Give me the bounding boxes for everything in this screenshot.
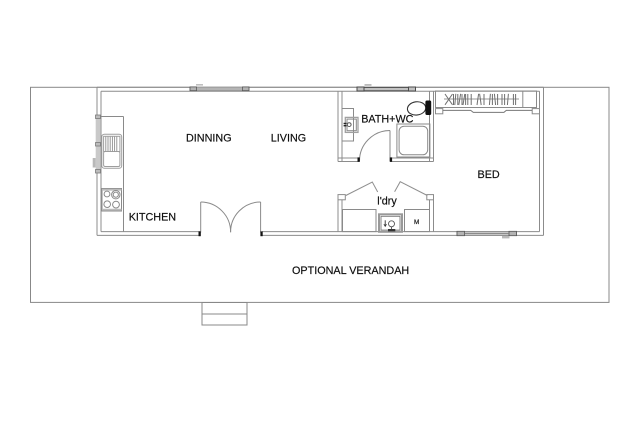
svg-text:l'dry: l'dry [377, 196, 397, 208]
svg-text:M: M [414, 219, 419, 226]
svg-text:DINNING: DINNING [186, 132, 232, 144]
svg-text:BED: BED [478, 169, 500, 181]
svg-text:LIVING: LIVING [271, 132, 306, 144]
svg-text:BATH+WC: BATH+WC [361, 114, 413, 126]
svg-text:OPTIONAL VERANDAH: OPTIONAL VERANDAH [292, 265, 409, 277]
svg-text:KITCHEN: KITCHEN [129, 211, 176, 223]
